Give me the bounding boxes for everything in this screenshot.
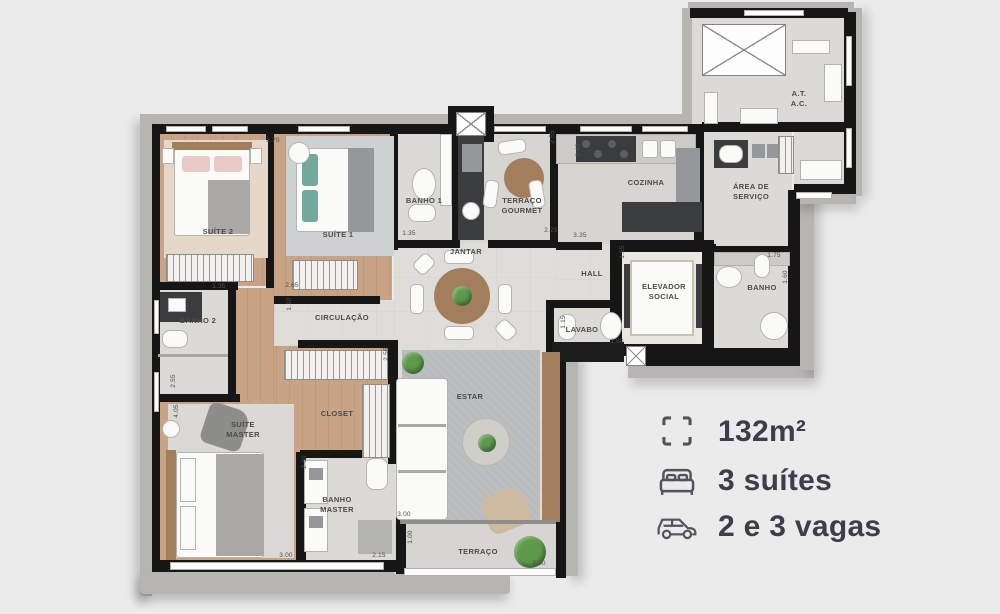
legend-row-area: 132m² bbox=[654, 412, 881, 450]
area-icon bbox=[654, 412, 700, 450]
legend-area-label: 132m² bbox=[718, 415, 806, 448]
dimension-label: 2.15 bbox=[372, 553, 385, 560]
dimension-label: 3.00 bbox=[397, 512, 410, 519]
dimension-label: 4.05 bbox=[174, 404, 181, 417]
dimension-label: 2.60 bbox=[302, 455, 309, 468]
room-label-estar: ESTAR bbox=[457, 392, 484, 402]
room-label-banho-social: BANHO bbox=[747, 283, 776, 293]
room-label-terraco-gourmet: TERRAÇO GOURMET bbox=[502, 196, 543, 216]
room-label-cozinha: COZINHA bbox=[628, 178, 665, 188]
room-label-circulacao: CIRCULAÇÃO bbox=[315, 313, 369, 323]
dimension-label: 2.55 bbox=[171, 374, 178, 387]
dimension-label: 2.65 bbox=[285, 283, 298, 290]
room-label-area-servico: ÁREA DE SERVIÇO bbox=[733, 182, 769, 202]
dimension-label: 2.40 bbox=[576, 143, 583, 156]
legend-suites-label: 3 suítes bbox=[718, 464, 832, 497]
dimension-label: 1.55 bbox=[620, 245, 627, 258]
legend-row-suites: 3 suítes bbox=[654, 461, 881, 499]
room-label-hall: HALL bbox=[581, 269, 602, 279]
dimension-label: 2.55 bbox=[384, 347, 391, 360]
legend-vagas-label: 2 e 3 vagas bbox=[718, 510, 881, 543]
room-label-banho-1: BANHO 1 bbox=[406, 196, 442, 206]
dimension-label: 1.00 bbox=[408, 530, 415, 543]
dimension-label: 1.15 bbox=[561, 315, 568, 328]
dimension-label: 1.60 bbox=[783, 270, 790, 283]
dimension-label: 2.55 bbox=[550, 130, 557, 143]
legend-row-vagas: 2 e 3 vagas bbox=[654, 510, 881, 543]
dimension-label: 2.25 bbox=[544, 228, 557, 235]
room-label-closet: CLOSET bbox=[321, 409, 354, 419]
room-label-suite-master: SUÍTE MASTER bbox=[226, 420, 260, 440]
dimension-label: 1.75 bbox=[767, 253, 780, 260]
dimension-label: 3.30 bbox=[532, 561, 545, 568]
dimension-label: 2.70 bbox=[266, 138, 279, 145]
room-label-at-ac: A.T. A.C. bbox=[791, 89, 807, 109]
dimension-label: 3.00 bbox=[279, 553, 292, 560]
room-label-lavabo: LAVABO bbox=[566, 325, 599, 335]
dimension-label: 1.35 bbox=[402, 231, 415, 238]
dimension-label: 1.10 bbox=[287, 297, 294, 310]
dimension-label: 3.35 bbox=[573, 233, 586, 240]
room-label-elevador-social: ELEVADOR SOCIAL bbox=[642, 282, 686, 302]
room-label-terraco: TERRAÇO bbox=[458, 547, 498, 557]
legend: 132m² 3 suítes 2 bbox=[654, 412, 881, 543]
room-label-banho-2: BANHO 2 bbox=[180, 316, 216, 326]
room-label-jantar: JANTAR bbox=[450, 247, 482, 257]
floor-plan-page: SUÍTE 2SUÍTE 1BANHO 1TERRAÇO GOURMETCOZI… bbox=[0, 0, 1000, 614]
room-label-suite-2: SUÍTE 2 bbox=[203, 227, 234, 237]
dimension-label: 1.60 bbox=[610, 339, 623, 346]
car-icon bbox=[654, 511, 700, 543]
dimension-label: 1.35 bbox=[212, 284, 225, 291]
room-label-banho-master: BANHO MASTER bbox=[320, 495, 354, 515]
room-label-suite-1: SUÍTE 1 bbox=[323, 230, 354, 240]
bed-icon bbox=[654, 461, 700, 499]
